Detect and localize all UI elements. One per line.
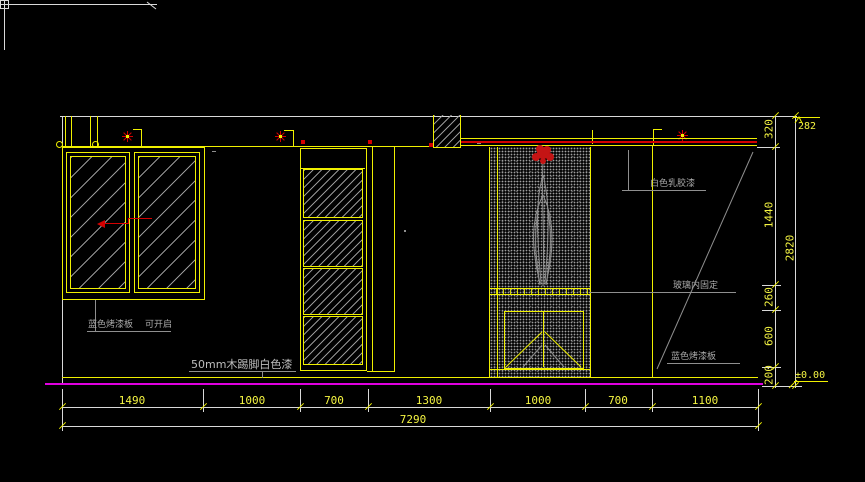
drawing-overlay	[0, 0, 865, 482]
stand-braces	[506, 332, 581, 367]
cad-elevation-canvas[interactable]: 蓝色烤漆板 可开启 白色乳胶漆 玻璃内固定 蓝色烤漆板 50mm木踢脚白色漆	[0, 0, 865, 482]
flower	[532, 145, 554, 164]
frame-corner-tick	[147, 2, 156, 9]
level-mark-caret	[789, 117, 802, 388]
leader-diagonal	[657, 152, 753, 369]
plant-stems	[534, 163, 552, 286]
